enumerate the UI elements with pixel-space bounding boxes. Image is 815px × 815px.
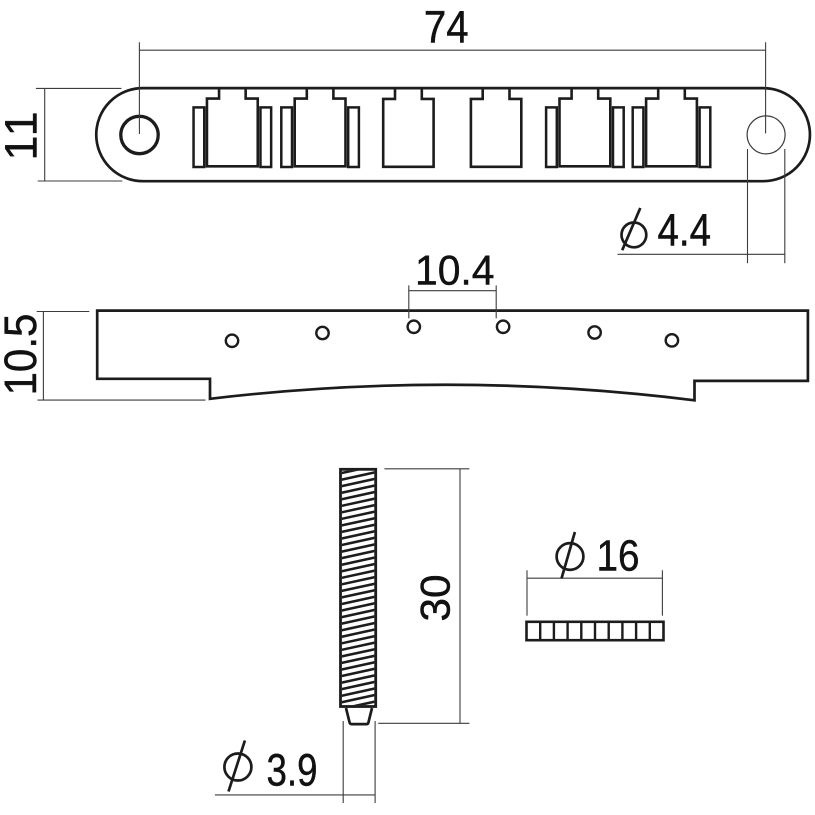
svg-text:11: 11 bbox=[0, 109, 46, 161]
svg-text:10.5: 10.5 bbox=[0, 314, 46, 396]
svg-text:3.9: 3.9 bbox=[267, 744, 318, 795]
svg-text:30: 30 bbox=[411, 575, 458, 622]
svg-text:4.4: 4.4 bbox=[658, 205, 712, 256]
svg-text:10.4: 10.4 bbox=[415, 247, 495, 294]
svg-text:74: 74 bbox=[424, 2, 469, 53]
svg-text:16: 16 bbox=[597, 531, 640, 580]
